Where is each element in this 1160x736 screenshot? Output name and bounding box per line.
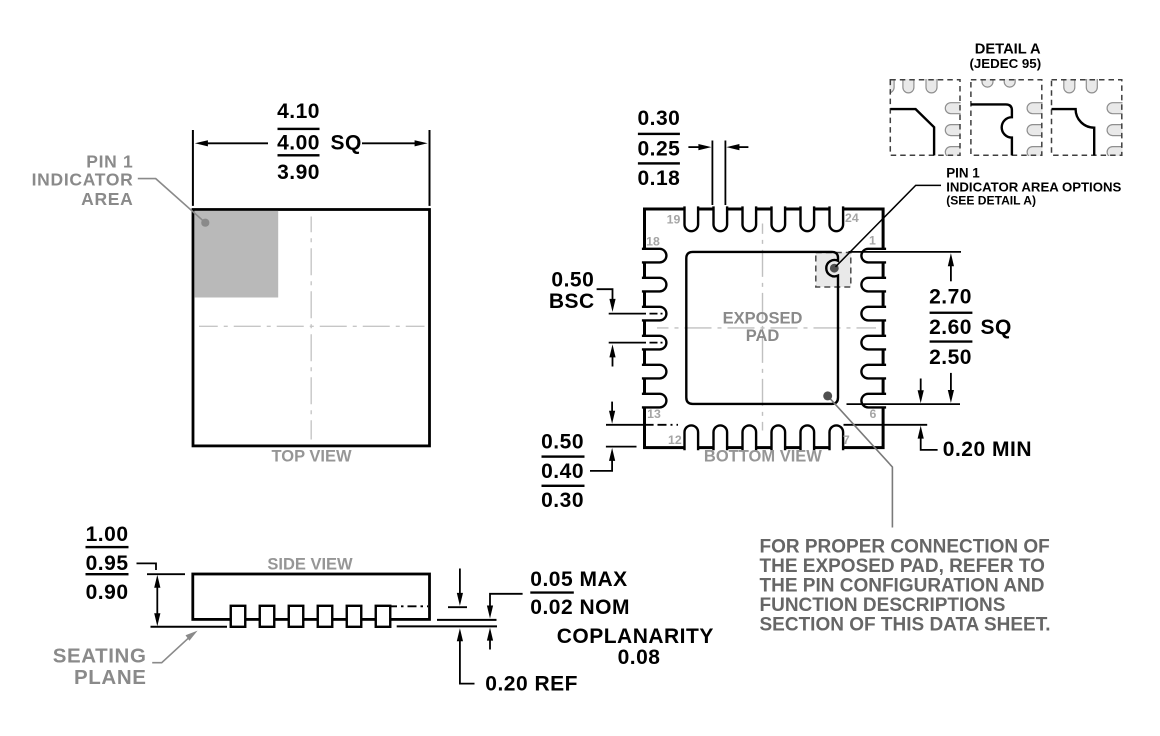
svg-text:0.18: 0.18 — [637, 167, 680, 190]
svg-text:0.30: 0.30 — [637, 107, 680, 130]
svg-text:PLANE: PLANE — [74, 666, 146, 689]
svg-text:(SEE DETAIL A): (SEE DETAIL A) — [946, 194, 1036, 208]
svg-text:0.50: 0.50 — [551, 269, 594, 292]
svg-text:0.02 NOM: 0.02 NOM — [530, 596, 630, 619]
svg-text:0.20 REF: 0.20 REF — [485, 673, 578, 696]
svg-text:(JEDEC 95): (JEDEC 95) — [969, 56, 1041, 71]
svg-text:SQ: SQ — [331, 131, 362, 154]
svg-text:0.30: 0.30 — [541, 489, 584, 512]
svg-text:12: 12 — [668, 433, 682, 447]
svg-text:BSC: BSC — [549, 290, 595, 313]
svg-text:BOTTOM VIEW: BOTTOM VIEW — [704, 448, 822, 466]
svg-text:7: 7 — [843, 433, 850, 447]
svg-text:0.08: 0.08 — [618, 646, 661, 669]
svg-text:2.70: 2.70 — [929, 286, 972, 309]
svg-text:19: 19 — [667, 213, 681, 227]
svg-text:PIN 1: PIN 1 — [946, 165, 980, 180]
svg-text:0.20 MIN: 0.20 MIN — [943, 438, 1032, 461]
svg-text:THE PIN CONFIGURATION AND: THE PIN CONFIGURATION AND — [760, 575, 1045, 596]
svg-text:INDICATOR: INDICATOR — [32, 170, 134, 190]
svg-text:1.00: 1.00 — [86, 523, 129, 546]
svg-text:1: 1 — [869, 234, 876, 248]
svg-text:0.25: 0.25 — [637, 138, 680, 161]
svg-text:SEATING: SEATING — [53, 644, 147, 667]
svg-text:2.60: 2.60 — [929, 316, 972, 339]
svg-text:FUNCTION DESCRIPTIONS: FUNCTION DESCRIPTIONS — [760, 595, 1006, 616]
svg-text:6: 6 — [869, 407, 876, 421]
svg-text:EXPOSED: EXPOSED — [723, 309, 803, 327]
svg-text:PAD: PAD — [746, 327, 780, 345]
svg-text:4.00: 4.00 — [277, 131, 320, 154]
svg-text:INDICATOR AREA OPTIONS: INDICATOR AREA OPTIONS — [946, 180, 1121, 195]
svg-text:SECTION OF THIS DATA SHEET.: SECTION OF THIS DATA SHEET. — [760, 614, 1051, 635]
svg-text:18: 18 — [646, 235, 660, 249]
svg-text:PIN 1: PIN 1 — [86, 151, 133, 171]
svg-text:COPLANARITY: COPLANARITY — [557, 625, 714, 648]
svg-text:SQ: SQ — [981, 316, 1012, 339]
svg-text:2.50: 2.50 — [929, 346, 972, 369]
svg-text:FOR PROPER CONNECTION OF: FOR PROPER CONNECTION OF — [760, 536, 1050, 557]
svg-text:13: 13 — [647, 407, 661, 421]
svg-text:24: 24 — [845, 211, 859, 225]
svg-text:0.05 MAX: 0.05 MAX — [530, 568, 627, 591]
svg-text:AREA: AREA — [81, 189, 133, 209]
svg-text:THE EXPOSED PAD, REFER TO: THE EXPOSED PAD, REFER TO — [760, 556, 1045, 577]
svg-text:0.50: 0.50 — [541, 430, 584, 453]
svg-text:0.90: 0.90 — [86, 581, 129, 604]
svg-text:4.10: 4.10 — [277, 100, 320, 123]
svg-text:3.90: 3.90 — [277, 161, 320, 184]
svg-text:TOP VIEW: TOP VIEW — [271, 448, 352, 466]
svg-text:SIDE VIEW: SIDE VIEW — [267, 555, 353, 573]
svg-text:0.40: 0.40 — [541, 460, 584, 483]
svg-text:0.95: 0.95 — [86, 552, 129, 575]
